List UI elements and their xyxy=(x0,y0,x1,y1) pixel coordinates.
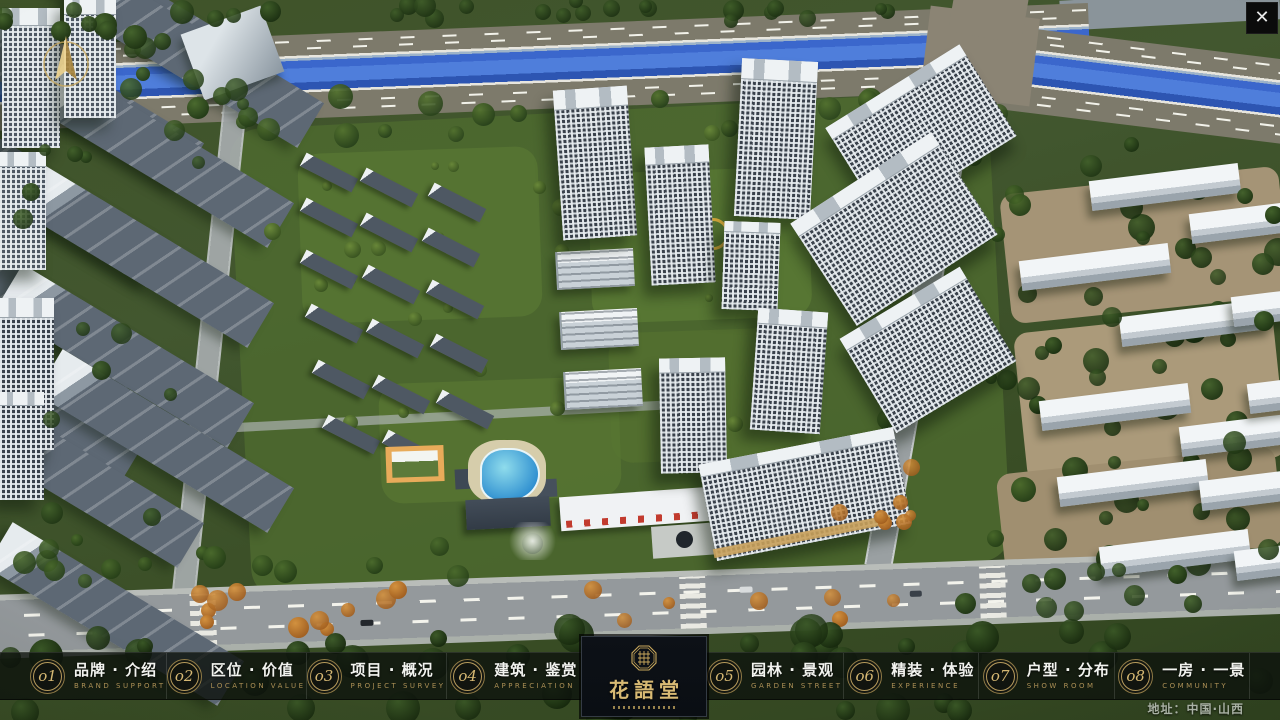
tree xyxy=(1102,307,1122,327)
tree xyxy=(378,124,392,138)
item-number-badge: o6 xyxy=(847,659,882,694)
nav-item-architecture[interactable]: o4 建筑 · 鉴赏 APPRECIATION xyxy=(447,653,581,699)
tree xyxy=(78,574,92,588)
tree xyxy=(41,502,63,524)
car xyxy=(910,591,922,597)
tree xyxy=(550,401,565,416)
tree xyxy=(1044,528,1067,551)
tree xyxy=(13,209,33,229)
tree xyxy=(101,559,121,579)
tower-roof xyxy=(0,298,54,318)
tree xyxy=(750,592,768,610)
tree xyxy=(328,84,353,109)
item-number-badge: o5 xyxy=(707,659,742,694)
compass-icon xyxy=(36,30,96,94)
nav-label-cn: 建筑 · 鉴赏 xyxy=(494,662,577,679)
tower xyxy=(553,86,637,241)
tree xyxy=(207,590,228,611)
tree xyxy=(154,33,171,50)
tree xyxy=(39,144,51,156)
tree xyxy=(947,698,972,720)
tree xyxy=(164,120,185,141)
tree xyxy=(727,416,743,432)
tree xyxy=(366,557,383,574)
tree xyxy=(1059,619,1084,644)
tree xyxy=(67,146,83,162)
tree xyxy=(836,701,855,720)
nav-label-en: APPRECIATION xyxy=(494,682,577,690)
nav-item-location[interactable]: o2 区位 · 价值 LOCATION VALUE xyxy=(167,653,307,699)
river-road-band xyxy=(996,25,1280,146)
nav-label-en: SHOW ROOM xyxy=(1027,682,1110,690)
tower-roof xyxy=(0,392,44,406)
logo-subtitle-line xyxy=(613,706,675,709)
tree xyxy=(1152,359,1167,374)
tree xyxy=(1136,231,1150,245)
nav-label-cn: 园林 · 景观 xyxy=(751,662,843,679)
tree xyxy=(1184,595,1202,613)
tower-windows xyxy=(554,105,637,240)
tree xyxy=(1254,311,1274,331)
tree xyxy=(1011,477,1036,502)
clubhouse-roof xyxy=(392,450,439,478)
tree xyxy=(818,97,841,120)
tree xyxy=(398,407,409,418)
item-number-badge: o7 xyxy=(983,659,1018,694)
tree xyxy=(187,97,209,119)
tree xyxy=(1258,539,1279,560)
tree xyxy=(86,626,110,650)
tree xyxy=(966,621,999,654)
tree xyxy=(651,90,669,108)
tree xyxy=(371,241,386,256)
tree xyxy=(893,495,908,510)
bottom-navbar: o1 品牌 · 介绍 BRAND SUPPORT o2 区位 · 价值 LOCA… xyxy=(0,652,1280,700)
tree xyxy=(535,4,551,20)
tree xyxy=(1252,253,1274,275)
tower-roof xyxy=(659,357,725,373)
tree xyxy=(260,1,281,22)
crosswalk xyxy=(679,576,707,629)
tree xyxy=(663,597,675,609)
tree xyxy=(1226,507,1250,531)
project-title: 花語堂 xyxy=(604,674,684,703)
tree xyxy=(314,278,328,292)
mid-rise xyxy=(559,308,639,350)
nav-label-cn: 项目 · 概况 xyxy=(351,662,446,679)
tree xyxy=(1089,369,1106,386)
tree xyxy=(1265,206,1280,224)
tree xyxy=(617,613,632,628)
tree xyxy=(252,555,273,576)
tree xyxy=(903,459,920,476)
tree xyxy=(120,78,142,100)
tree xyxy=(123,25,147,49)
tree xyxy=(389,581,407,599)
tower xyxy=(750,308,828,435)
tree xyxy=(192,156,205,169)
seal-icon xyxy=(631,645,657,671)
tree xyxy=(1022,574,1041,593)
tree xyxy=(11,698,39,720)
tree xyxy=(170,0,194,24)
tree xyxy=(430,537,449,556)
tree xyxy=(136,67,150,81)
glow xyxy=(505,522,560,560)
nav-item-brand[interactable]: o1 品牌 · 介绍 BRAND SUPPORT xyxy=(30,653,167,699)
tree xyxy=(896,514,912,530)
tree xyxy=(1087,563,1105,581)
tree xyxy=(344,241,361,258)
tree xyxy=(39,539,59,559)
nav-item-community[interactable]: o8 一房 · 一景 COMMUNITY xyxy=(1115,653,1250,699)
tree xyxy=(724,14,738,28)
tree xyxy=(322,181,332,191)
tree xyxy=(1084,287,1103,306)
tree xyxy=(1045,337,1062,354)
tree xyxy=(799,10,816,27)
nav-item-project[interactable]: o3 项目 · 概况 PROJECT SURVEY xyxy=(307,653,447,699)
nav-label-en: EXPERIENCE xyxy=(891,682,974,690)
tower-windows xyxy=(734,79,817,220)
nav-item-floorplan[interactable]: o7 户型 · 分布 SHOW ROOM xyxy=(979,653,1114,699)
tree xyxy=(44,560,65,581)
tower-windows xyxy=(659,372,727,473)
tree xyxy=(334,123,359,148)
tree xyxy=(1099,511,1113,525)
tree xyxy=(875,3,887,15)
tower-windows xyxy=(721,232,780,310)
crosswalk xyxy=(979,565,1007,618)
nav-label-cn: 精装 · 体验 xyxy=(891,662,974,679)
tree xyxy=(22,183,40,201)
tree xyxy=(225,78,248,101)
tree xyxy=(1223,431,1246,454)
nav-label-cn: 品牌 · 介绍 xyxy=(74,662,166,679)
tree xyxy=(274,560,297,583)
tree xyxy=(183,69,204,90)
tree xyxy=(1036,597,1057,618)
logo-panel[interactable]: 花語堂 xyxy=(581,636,707,717)
nav-label-en: COMMUNITY xyxy=(1162,682,1245,690)
tree xyxy=(510,105,527,122)
tree xyxy=(987,530,1004,547)
tree xyxy=(824,589,841,606)
tree xyxy=(92,361,111,380)
tree xyxy=(603,0,620,17)
tower-roof xyxy=(741,58,818,82)
tree xyxy=(1112,563,1126,577)
item-number-badge: o4 xyxy=(450,659,485,694)
tree xyxy=(1124,137,1139,152)
tree xyxy=(1064,601,1084,621)
tree xyxy=(721,120,738,137)
tree xyxy=(43,411,60,428)
tree xyxy=(430,630,447,647)
tree xyxy=(1044,568,1066,590)
tree xyxy=(1191,247,1212,268)
tree xyxy=(390,8,404,22)
nav-label-en: LOCATION VALUE xyxy=(211,682,306,690)
tree xyxy=(408,312,422,326)
tree xyxy=(164,388,177,401)
tree xyxy=(639,0,652,13)
tree xyxy=(459,0,474,14)
tree xyxy=(447,565,469,587)
tower xyxy=(659,357,727,473)
tree xyxy=(325,633,346,654)
masterplan-render[interactable] xyxy=(0,0,1280,720)
item-number-badge: o3 xyxy=(307,659,342,694)
item-number-badge: o2 xyxy=(167,659,202,694)
tree xyxy=(767,0,784,17)
nav-item-garden[interactable]: o5 园林 · 景观 GARDEN STREET xyxy=(707,653,844,699)
tree xyxy=(228,583,246,601)
address-text: 地址：中国·山西 xyxy=(1147,700,1244,717)
tower-windows xyxy=(645,162,715,285)
tree xyxy=(584,581,602,599)
tree xyxy=(1137,499,1149,511)
car xyxy=(739,586,752,592)
tree xyxy=(288,617,309,638)
item-number-badge: o8 xyxy=(1118,659,1153,694)
tree xyxy=(705,294,713,302)
tree xyxy=(1237,188,1253,204)
mid-rise xyxy=(555,248,635,290)
tree xyxy=(226,8,241,23)
tower xyxy=(0,392,44,500)
tower xyxy=(734,58,818,220)
tree xyxy=(448,161,459,172)
tree xyxy=(556,8,571,23)
tree xyxy=(1168,565,1187,584)
nav-label-en: BRAND SUPPORT xyxy=(74,682,166,690)
tree xyxy=(98,21,117,40)
tree xyxy=(264,223,281,240)
presentation-window: ✕ o1 品牌 · 介绍 BRAND SUPPORT o2 区位 · 价值 LO… xyxy=(0,0,1280,720)
nav-label-en: PROJECT SURVEY xyxy=(351,682,446,690)
tree xyxy=(200,615,214,629)
entry-disc xyxy=(676,531,693,548)
tree xyxy=(740,634,759,653)
tree xyxy=(13,551,36,574)
tree xyxy=(431,162,439,170)
close-button[interactable]: ✕ xyxy=(1246,2,1278,34)
tower-roof xyxy=(724,221,780,234)
tree xyxy=(1104,623,1131,650)
nav-label-en: GARDEN STREET xyxy=(751,682,843,690)
tree xyxy=(238,107,258,127)
tree xyxy=(207,10,224,27)
tower-windows xyxy=(0,406,44,500)
tree xyxy=(704,125,720,141)
mid-rise xyxy=(563,368,643,410)
tower-windows xyxy=(750,324,827,435)
tree xyxy=(257,118,280,141)
tree xyxy=(66,2,82,18)
nav-label-cn: 区位 · 价值 xyxy=(211,662,306,679)
car xyxy=(360,620,373,626)
nav-label-cn: 一房 · 一景 xyxy=(1162,662,1245,679)
item-number-badge: o1 xyxy=(30,659,65,694)
tree xyxy=(418,91,443,116)
tree xyxy=(1009,194,1031,216)
tree xyxy=(1210,269,1226,285)
nav-item-experience[interactable]: o6 精装 · 体验 EXPERIENCE xyxy=(844,653,979,699)
tree xyxy=(472,103,495,126)
nav-label-cn: 户型 · 分布 xyxy=(1027,662,1110,679)
tree xyxy=(1124,585,1145,606)
tree xyxy=(1201,378,1223,400)
tree xyxy=(831,504,848,521)
tower-roof xyxy=(0,152,46,167)
tree xyxy=(341,603,355,617)
tree xyxy=(76,322,90,336)
tree xyxy=(1017,377,1040,400)
tree xyxy=(71,534,83,546)
tree xyxy=(143,508,161,526)
tree xyxy=(887,594,900,607)
tree xyxy=(138,557,152,571)
tree xyxy=(111,323,132,344)
tree xyxy=(203,546,226,569)
tree xyxy=(874,510,888,524)
tree xyxy=(533,181,546,194)
tree xyxy=(955,593,976,614)
tower xyxy=(721,221,780,311)
tree xyxy=(448,126,464,142)
tree xyxy=(997,370,1017,390)
tower-roof xyxy=(644,144,709,165)
tree xyxy=(1108,456,1121,469)
tree xyxy=(310,611,329,630)
tower xyxy=(644,144,715,285)
tree xyxy=(1080,155,1102,177)
